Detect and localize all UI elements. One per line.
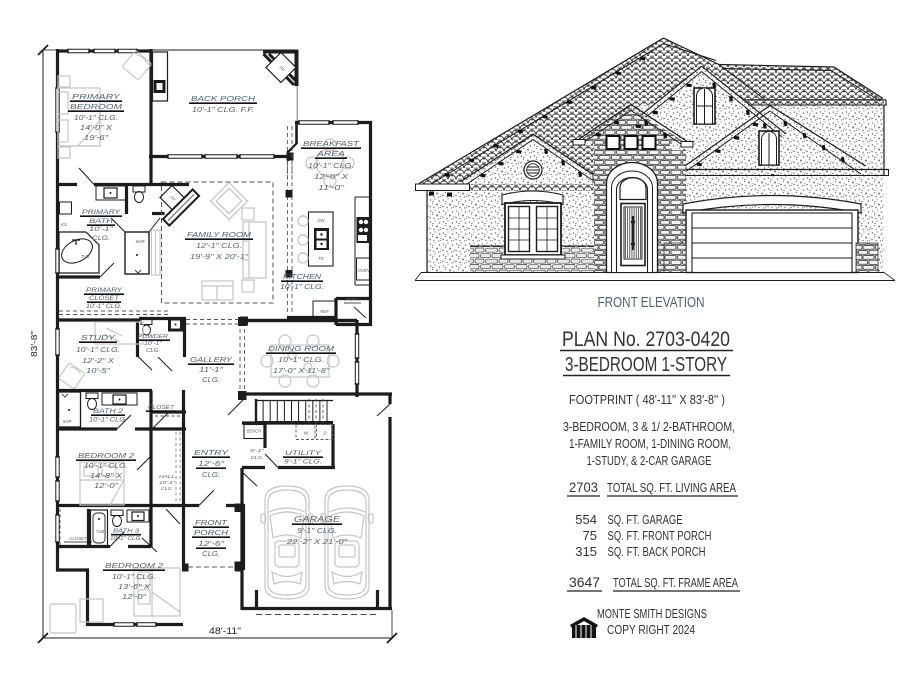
svg-text:TUB: TUB (96, 529, 105, 534)
svg-text:SHR: SHR (63, 419, 72, 424)
svg-text:BEDROOM 2: BEDROOM 2 (78, 451, 135, 460)
svg-text:CLG.: CLG. (92, 235, 110, 242)
svg-text:PORCH: PORCH (194, 528, 229, 537)
svg-text:STUDY: STUDY (81, 333, 116, 342)
svg-text:AREA: AREA (316, 149, 345, 158)
svg-text:OVEN: OVEN (358, 268, 371, 273)
svg-text:12'-6": 12'-6" (198, 541, 225, 548)
svg-text:CLOSET: CLOSET (148, 405, 175, 411)
svg-text:10'-1": 10'-1" (89, 226, 114, 233)
svg-text:12'-0": 12'-0" (122, 594, 147, 601)
svg-text:22'-2" X 21'-0": 22'-2" X 21'-0" (286, 537, 348, 546)
svg-text:10'-1" CLG.: 10'-1" CLG. (278, 357, 324, 364)
svg-text:TUB: TUB (81, 254, 90, 259)
svg-text:10'-1" CLG.: 10'-1" CLG. (112, 574, 156, 581)
svg-text:10'-1" CLG.: 10'-1" CLG. (89, 417, 127, 424)
svg-text:9'-1": 9'-1" (250, 448, 265, 453)
svg-text:1-STUDY, & 2-CAR GARAGE: 1-STUDY, & 2-CAR GARAGE (587, 453, 712, 468)
svg-text:SQ. FT. BACK PORCH: SQ. FT. BACK PORCH (608, 544, 706, 559)
svg-text:17'-0" X 11'-8": 17'-0" X 11'-8" (273, 368, 330, 375)
svg-text:TOTAL SQ. FT. LIVING AREA: TOTAL SQ. FT. LIVING AREA (607, 480, 736, 495)
svg-text:CLG.: CLG. (202, 472, 220, 479)
svg-text:2703: 2703 (569, 479, 598, 495)
svg-text:11'-0": 11'-0" (318, 185, 345, 192)
svg-text:19'-6": 19'-6" (84, 135, 109, 142)
svg-text:554: 554 (575, 512, 597, 527)
svg-text:BREAKFAST: BREAKFAST (303, 139, 361, 148)
svg-text:12'-6": 12'-6" (198, 461, 225, 468)
svg-text:PRIMARY: PRIMARY (72, 92, 121, 101)
svg-text:FAMILY ROOM: FAMILY ROOM (187, 230, 252, 239)
svg-text:FRONT: FRONT (195, 518, 228, 527)
svg-text:10'-1" CLG.: 10'-1" CLG. (86, 304, 122, 310)
svg-text:3-BEDROOM, 3 & 1/ 2-BATHROOM,: 3-BEDROOM, 3 & 1/ 2-BATHROOM, (563, 419, 735, 434)
svg-text:SQ. FT. GARAGE: SQ. FT. GARAGE (608, 512, 683, 527)
svg-text:COPY RIGHT 2024: COPY RIGHT 2024 (607, 622, 695, 637)
svg-text:48'-11": 48'-11" (209, 626, 241, 636)
svg-text:BEDROOM 2: BEDROOM 2 (105, 561, 164, 570)
svg-text:KS: KS (61, 222, 67, 227)
svg-text:14'-0" X: 14'-0" X (80, 125, 112, 132)
svg-text:BEDROOM: BEDROOM (70, 102, 123, 111)
svg-text:MONTE SMITH DESIGNS: MONTE SMITH DESIGNS (597, 606, 707, 621)
svg-text:FRONT ELEVATION: FRONT ELEVATION (598, 295, 705, 311)
svg-text:CLOSET: CLOSET (69, 536, 87, 541)
svg-text:11'-1": 11'-1" (199, 367, 224, 374)
svg-text:10'-1" CLG.: 10'-1" CLG. (74, 115, 118, 122)
svg-text:PLAN No. 2703-0420: PLAN No. 2703-0420 (562, 328, 730, 351)
svg-text:9'-1" CLG.: 9'-1" CLG. (284, 459, 322, 466)
svg-text:19'-9" X 20'-1": 19'-9" X 20'-1" (190, 254, 249, 261)
svg-text:10'-1" CLG. F.F.: 10'-1" CLG. F.F. (192, 107, 254, 114)
svg-text:13'-6" X: 13'-6" X (118, 584, 150, 591)
svg-text:12'-0": 12'-0" (94, 483, 119, 490)
svg-text:315: 315 (575, 544, 597, 559)
svg-text:12'-1" CLG.: 12'-1" CLG. (196, 243, 242, 250)
svg-text:BENCH: BENCH (247, 429, 263, 434)
svg-text:HALL: HALL (159, 474, 176, 479)
svg-text:BATH 2: BATH 2 (93, 408, 124, 415)
svg-text:10'-1" CLG.: 10'-1" CLG. (76, 347, 120, 354)
svg-text:10'-1": 10'-1" (144, 341, 162, 347)
svg-text:DW: DW (318, 218, 326, 223)
svg-text:83'-8": 83'-8" (29, 331, 39, 357)
svg-text:CLG.: CLG. (202, 551, 220, 558)
svg-text:9'-1" CLG.: 9'-1" CLG. (297, 526, 337, 535)
svg-text:10'-1" CLG.: 10'-1" CLG. (84, 463, 128, 470)
svg-text:10'-5": 10'-5" (86, 368, 111, 375)
svg-text:PRIMARY: PRIMARY (82, 209, 121, 216)
svg-text:GALLERY: GALLERY (190, 355, 233, 364)
svg-text:PRIMARY: PRIMARY (86, 287, 123, 294)
svg-text:10'-1": 10'-1" (159, 480, 176, 485)
svg-text:BATH 3: BATH 3 (113, 529, 140, 535)
svg-text:10'-1" CLG.: 10'-1" CLG. (280, 284, 324, 291)
svg-text:TOTAL SQ. FT. FRAME AREA: TOTAL SQ. FT. FRAME AREA (613, 575, 738, 590)
svg-text:CLG.: CLG. (202, 377, 220, 384)
svg-text:SQ. FT. FRONT PORCH: SQ. FT. FRONT PORCH (608, 528, 712, 543)
svg-text:CLG.: CLG. (146, 348, 160, 354)
svg-text:POWDER: POWDER (138, 334, 168, 340)
svg-text:CLG.: CLG. (251, 455, 264, 460)
svg-text:UTILITY: UTILITY (285, 450, 322, 457)
svg-text:10'-1" CLG.: 10'-1" CLG. (110, 536, 142, 542)
svg-text:3-BEDROOM 1-STORY: 3-BEDROOM 1-STORY (565, 354, 727, 376)
svg-text:FOOTPRINT ( 48'-11'' X 83'-8'': FOOTPRINT ( 48'-11'' X 83'-8'' ) (569, 392, 725, 407)
svg-text:BACK PORCH: BACK PORCH (191, 94, 256, 103)
svg-text:ENTRY: ENTRY (194, 448, 229, 457)
svg-text:REF: REF (320, 309, 329, 314)
svg-text:SHR: SHR (135, 239, 145, 244)
svg-text:TD: TD (318, 256, 324, 261)
svg-text:KITCHEN: KITCHEN (283, 272, 322, 281)
svg-text:CLOSET: CLOSET (89, 295, 120, 302)
svg-text:BATH: BATH (89, 218, 113, 225)
svg-text:GARAGE: GARAGE (294, 515, 341, 524)
svg-text:75: 75 (583, 528, 597, 543)
svg-text:PTRY.: PTRY. (346, 297, 359, 302)
svg-text:1-FAMILY ROOM, 1-DINING ROOM,: 1-FAMILY ROOM, 1-DINING ROOM, (569, 436, 731, 451)
svg-text:CLG.: CLG. (161, 486, 173, 491)
svg-text:14'-8" X: 14'-8" X (90, 473, 122, 480)
svg-text:12'-0" X: 12'-0" X (314, 174, 348, 181)
svg-text:3647: 3647 (569, 574, 600, 590)
svg-text:12'-2" X: 12'-2" X (82, 358, 114, 365)
svg-text:10'-1" CLG.: 10'-1" CLG. (308, 163, 354, 170)
svg-text:DINING ROOM: DINING ROOM (268, 344, 335, 353)
